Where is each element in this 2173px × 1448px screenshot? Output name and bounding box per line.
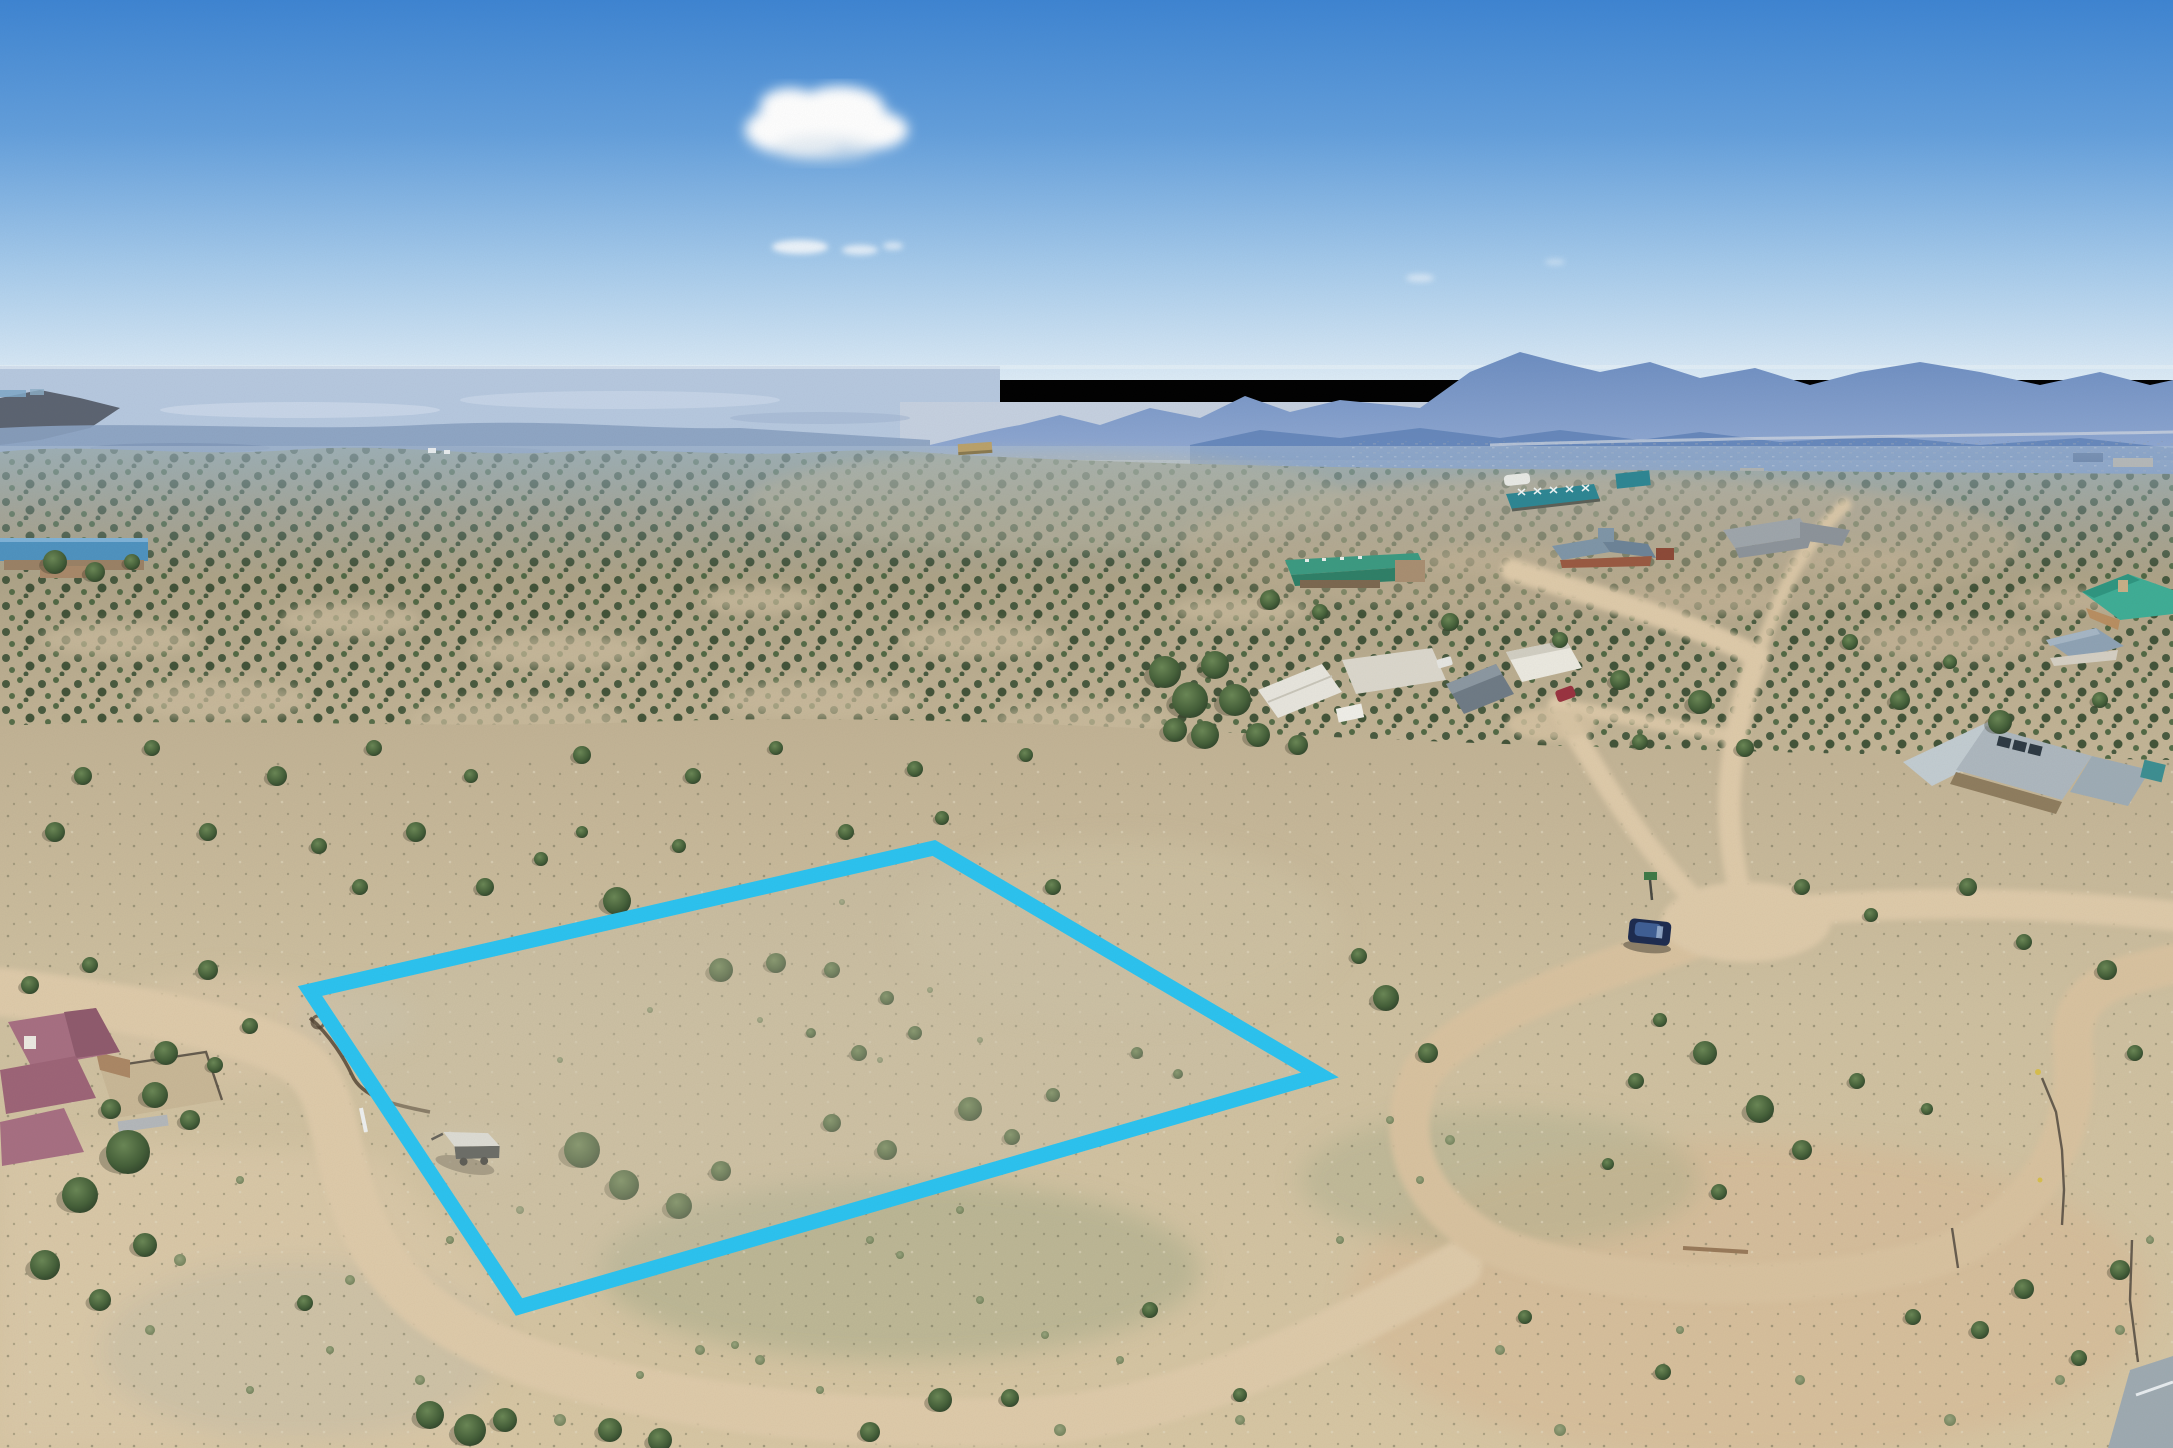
aerial-photo — [0, 0, 2173, 1448]
photo-grain — [0, 0, 2173, 1448]
